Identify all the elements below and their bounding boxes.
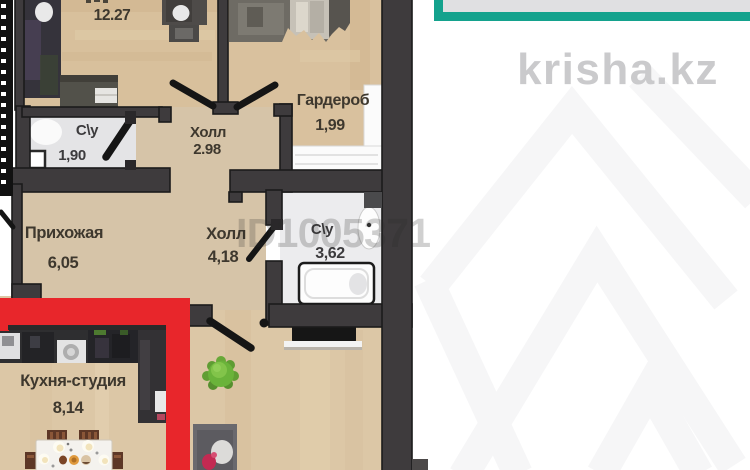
svg-text:krisha.kz: krisha.kz [517,45,719,94]
svg-text:8,14: 8,14 [53,399,85,417]
svg-text:Прихожая: Прихожая [25,224,103,242]
svg-text:Холл: Холл [190,124,226,141]
svg-text:2.98: 2.98 [193,141,221,158]
svg-text:4,18: 4,18 [208,248,239,266]
svg-text:ID1005371: ID1005371 [236,210,430,256]
svg-text:Кухня-студия: Кухня-студия [20,372,126,390]
svg-text:С\у: С\у [76,122,99,139]
svg-text:Гардероб: Гардероб [297,92,370,109]
svg-text:1,90: 1,90 [58,147,86,164]
svg-text:6,05: 6,05 [48,254,79,272]
svg-text:12.27: 12.27 [94,7,131,24]
svg-text:1,99: 1,99 [315,117,345,134]
